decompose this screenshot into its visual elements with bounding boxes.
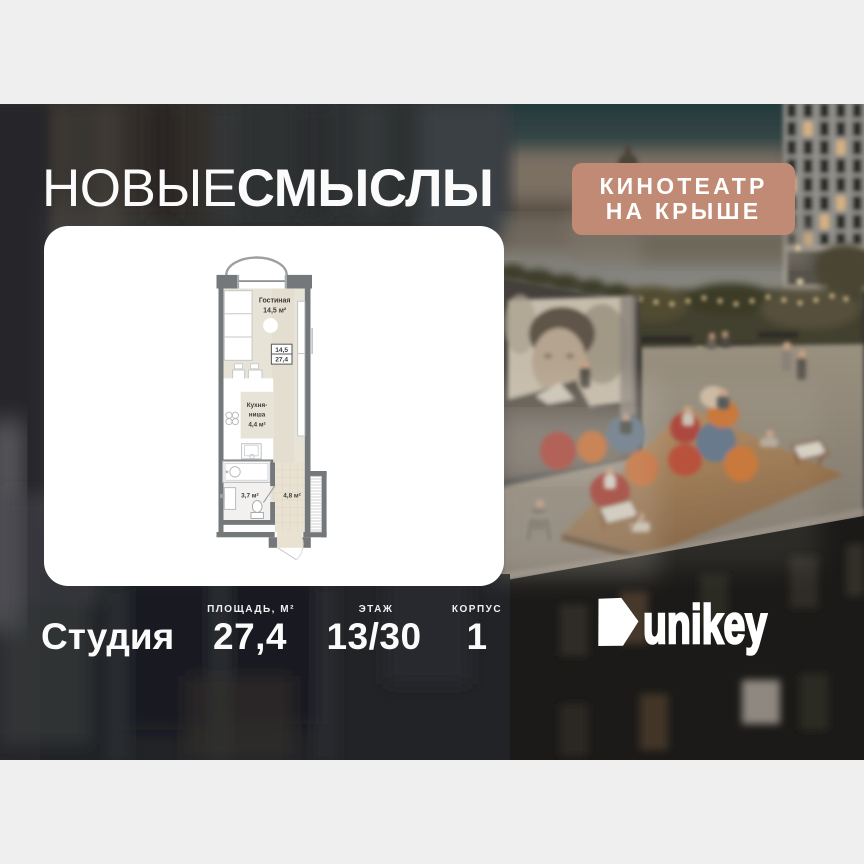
svg-text:14,5 м²: 14,5 м² (263, 308, 287, 315)
svg-text:14,5: 14,5 (275, 347, 288, 354)
svg-text:ниша: ниша (249, 412, 266, 419)
svg-text:Кухня-: Кухня- (247, 402, 268, 409)
svg-text:4,8 м²: 4,8 м² (283, 492, 301, 499)
svg-text:unikey: unikey (643, 594, 767, 655)
svg-text:27,4: 27,4 (275, 357, 288, 364)
svg-text:Гостиная: Гостиная (259, 298, 291, 305)
svg-text:3,7 м²: 3,7 м² (241, 492, 259, 499)
svg-text:4,4 м²: 4,4 м² (248, 422, 265, 429)
